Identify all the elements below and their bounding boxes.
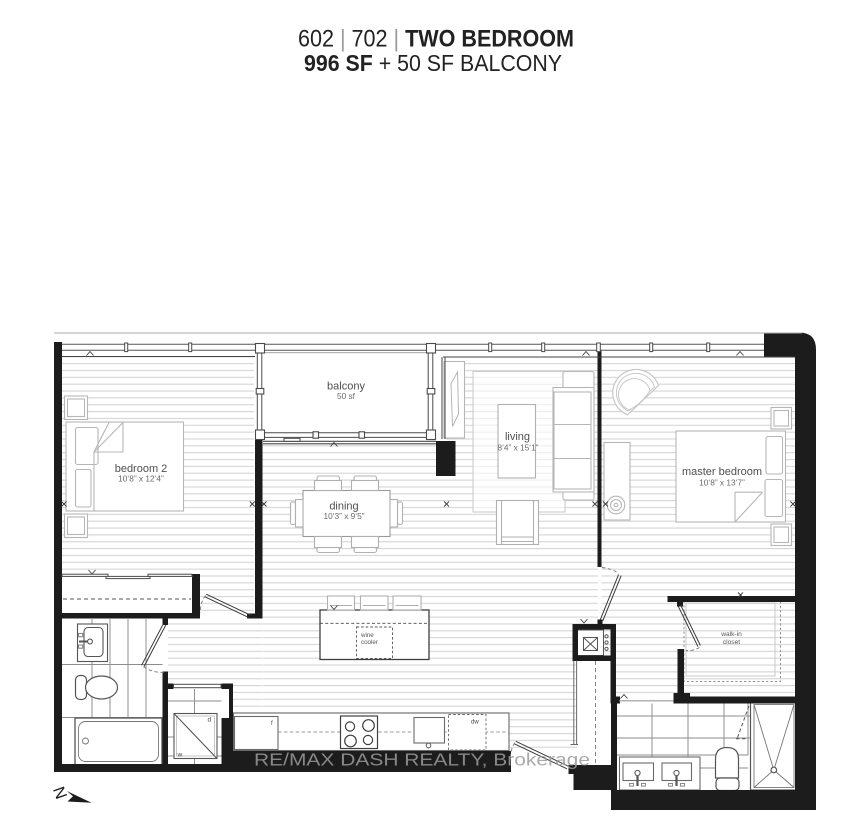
svg-text:w: w [177, 752, 183, 759]
svg-text:10‘8” x 12‘4”: 10‘8” x 12‘4” [118, 473, 164, 483]
svg-text:996 SF + 50 SF BALCONY: 996 SF + 50 SF BALCONY [304, 50, 562, 76]
svg-text:living: living [505, 431, 530, 443]
svg-text:dw: dw [471, 720, 479, 726]
svg-text:602 | 702 | TWO BEDROOM: 602 | 702 | TWO BEDROOM [298, 26, 574, 53]
svg-text:50 sf: 50 sf [337, 391, 356, 401]
svg-text:master bedroom: master bedroom [682, 466, 762, 478]
svg-text:10‘8” x 13‘7”: 10‘8” x 13‘7” [699, 477, 745, 487]
svg-text:d: d [208, 717, 212, 724]
svg-text:cooler: cooler [361, 639, 378, 646]
svg-text:walk-in: walk-in [720, 631, 742, 638]
svg-text:closet: closet [723, 639, 740, 646]
svg-text:8‘4” x 15‘1”: 8‘4” x 15‘1” [497, 443, 538, 453]
svg-text:RE/MAX DASH REALTY, Brokerage: RE/MAX DASH REALTY, Brokerage [254, 750, 590, 770]
svg-text:10‘3” x 9‘5”: 10‘3” x 9‘5” [323, 511, 364, 521]
svg-text:wine: wine [360, 632, 374, 639]
